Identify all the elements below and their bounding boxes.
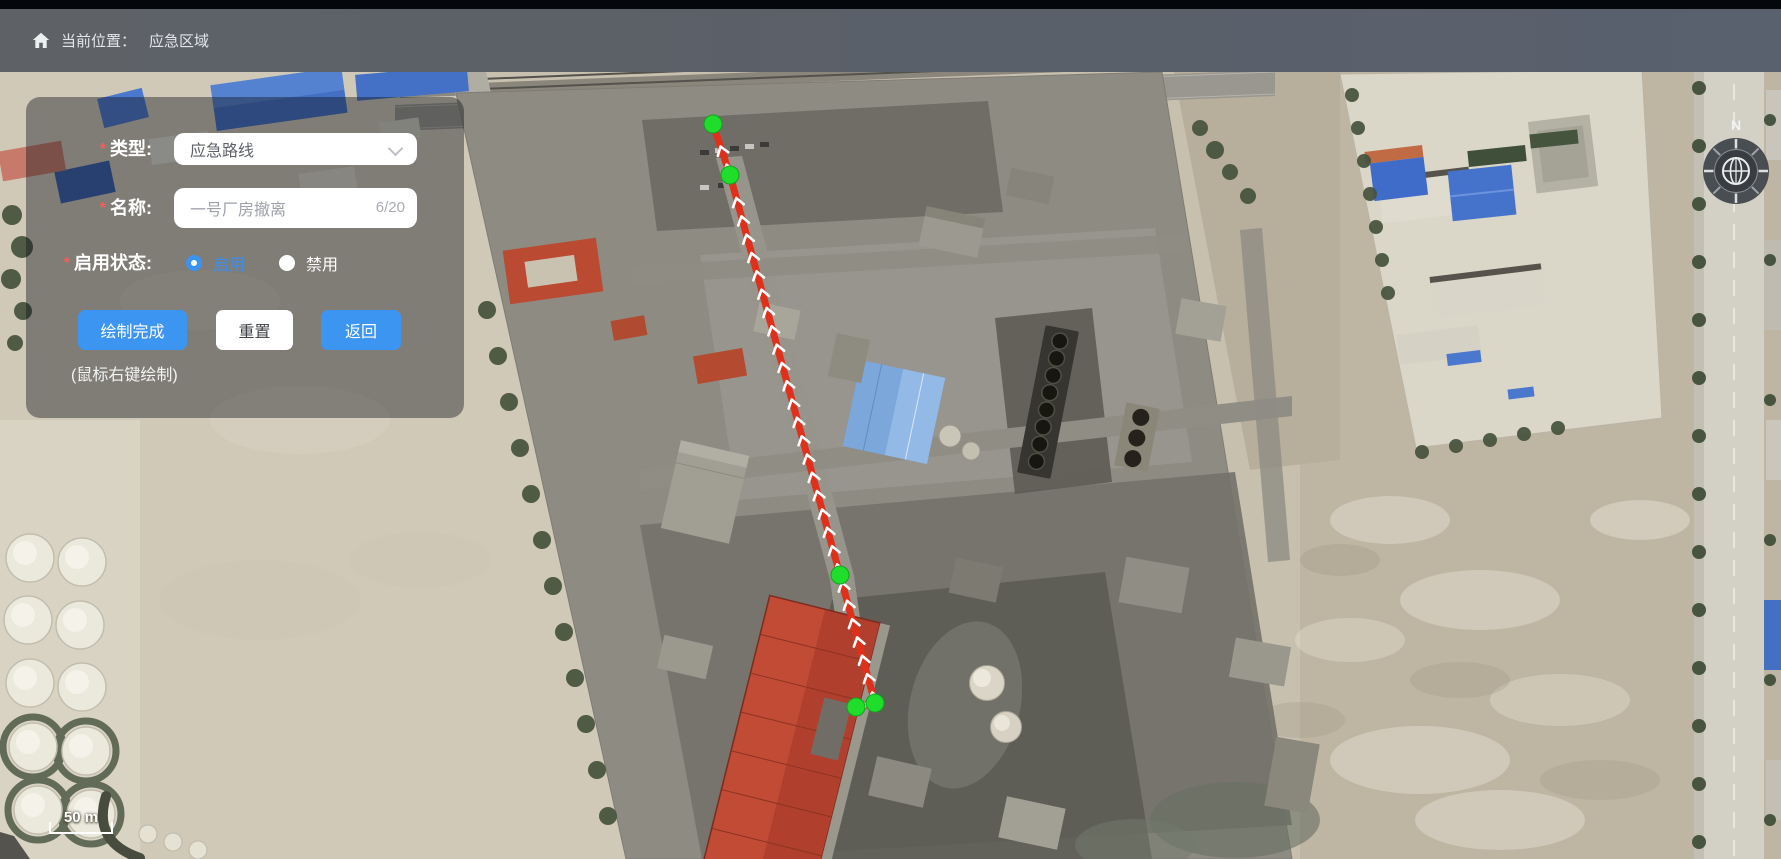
compass-dial [1703, 138, 1769, 204]
compass-north-label: N [1731, 117, 1741, 133]
status-label: *启用状态: [26, 254, 152, 273]
type-select[interactable]: 应急路线 [174, 133, 417, 165]
breadcrumb-label: 当前位置： [61, 30, 136, 51]
reset-button[interactable]: 重置 [216, 310, 293, 350]
name-field-wrap: 6/20 [174, 188, 417, 228]
radio-disabled[interactable] [279, 255, 295, 271]
compass[interactable]: N [1697, 114, 1775, 214]
back-button[interactable]: 返回 [321, 310, 401, 350]
route-drawing-panel: *类型: 应急路线 *名称: 6/20 *启用状态: 启用 禁用 绘制完成 重置… [26, 97, 464, 418]
app-window: N 50 m [0, 0, 1781, 859]
home-icon[interactable] [32, 32, 50, 49]
type-label: *类型: [26, 133, 152, 166]
radio-enabled-label[interactable]: 启用 [213, 251, 245, 275]
chevron-down-icon [388, 141, 404, 157]
map-scale-label: 50 m [49, 810, 113, 826]
radio-enabled[interactable] [186, 255, 202, 271]
finish-drawing-button[interactable]: 绘制完成 [78, 310, 187, 350]
required-mark: * [100, 141, 106, 158]
name-char-counter: 6/20 [376, 188, 405, 228]
map-scale: 50 m [49, 810, 113, 834]
breadcrumb-bar: 当前位置： 应急区域 [0, 9, 1781, 72]
name-label: *名称: [26, 188, 152, 229]
draw-hint-text: (鼠标右键绘制) [71, 361, 178, 385]
window-top-strip [0, 0, 1781, 9]
globe-icon [1723, 158, 1749, 184]
radio-disabled-label[interactable]: 禁用 [306, 251, 338, 275]
status-radio-group: 启用 禁用 [186, 254, 338, 272]
type-select-value: 应急路线 [190, 137, 383, 161]
required-mark: * [64, 255, 70, 272]
breadcrumb-value[interactable]: 应急区域 [149, 30, 209, 51]
required-mark: * [100, 200, 106, 217]
